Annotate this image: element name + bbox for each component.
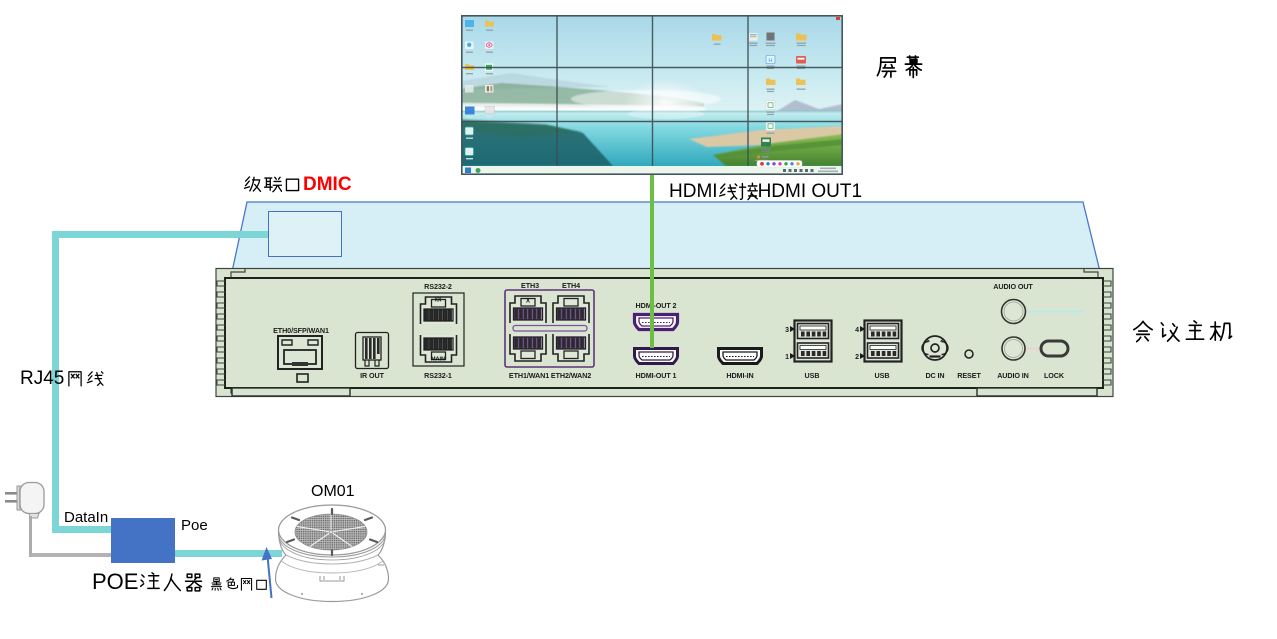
svg-text:4: 4 — [855, 327, 859, 334]
svg-text:HDMI-IN: HDMI-IN — [726, 371, 753, 380]
svg-text:ETH0/SFP/WAN1: ETH0/SFP/WAN1 — [273, 326, 329, 335]
svg-text:ETH4: ETH4 — [562, 281, 580, 290]
svg-text:LOCK: LOCK — [1044, 371, 1065, 380]
svg-text:3: 3 — [785, 327, 789, 334]
svg-text:XX: XX — [435, 298, 442, 304]
svg-text:USB: USB — [875, 371, 890, 380]
svg-text:ETH1/WAN1: ETH1/WAN1 — [509, 371, 549, 380]
svg-text:AUDIO OUT: AUDIO OUT — [993, 282, 1033, 291]
svg-text:IR OUT: IR OUT — [360, 371, 384, 380]
svg-text:RS232-1: RS232-1 — [424, 371, 452, 380]
svg-text:MAIN: MAIN — [431, 357, 445, 363]
svg-text:ETH3: ETH3 — [521, 281, 539, 290]
svg-text:2: 2 — [855, 354, 859, 361]
svg-text:1: 1 — [785, 354, 789, 361]
svg-text:USB: USB — [805, 371, 820, 380]
svg-text:AUDIO IN: AUDIO IN — [997, 371, 1029, 380]
svg-text:DC IN: DC IN — [925, 371, 944, 380]
svg-text:H: H — [768, 58, 772, 64]
svg-text:X: X — [526, 299, 530, 305]
svg-text:RS232-2: RS232-2 — [424, 282, 452, 291]
svg-text:RESET: RESET — [957, 371, 981, 380]
svg-text:ETH2/WAN2: ETH2/WAN2 — [551, 371, 591, 380]
svg-text:HDMI-OUT 2: HDMI-OUT 2 — [636, 301, 677, 310]
svg-text:HDMI-OUT 1: HDMI-OUT 1 — [636, 371, 677, 380]
